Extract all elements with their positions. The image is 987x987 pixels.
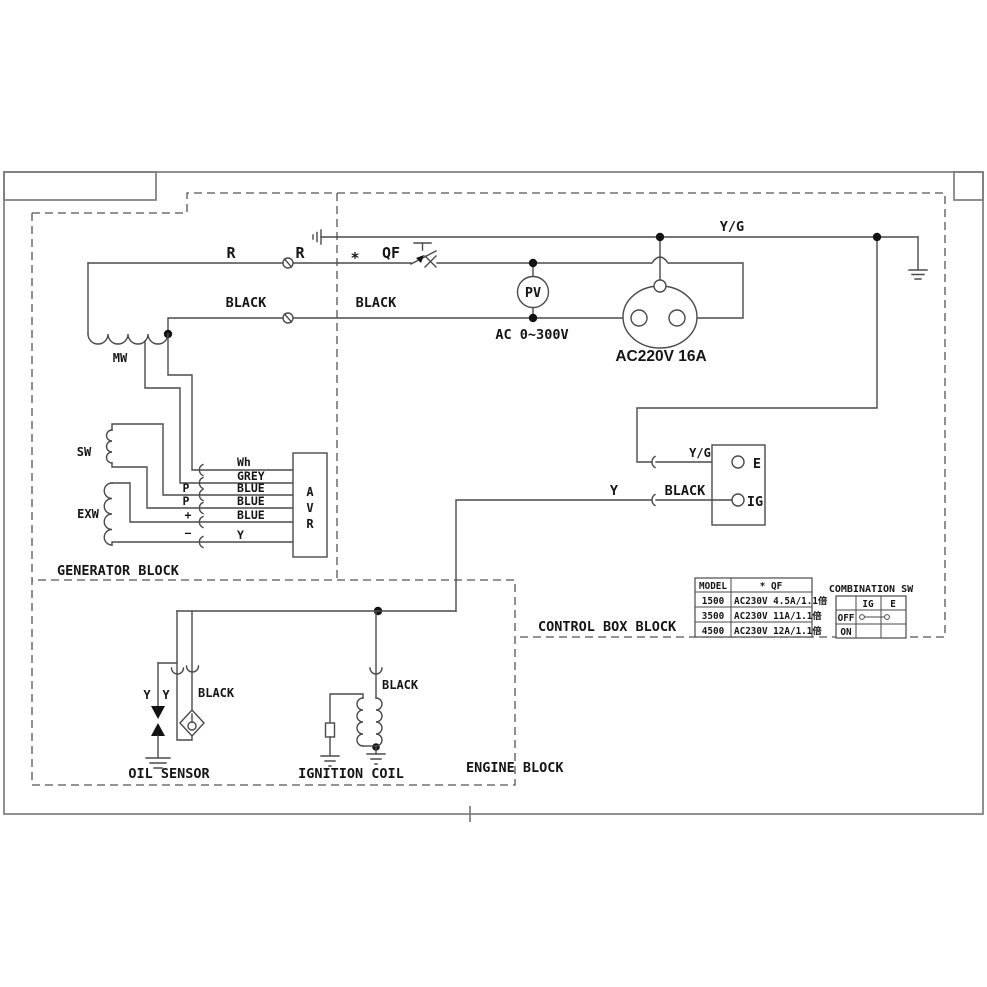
socket-notch-icon [654,280,666,292]
oil-sensor: Y Y BLACK OIL SENSOR [128,611,235,782]
model-cell: 4500 [702,626,725,637]
avr-letter: R [306,517,314,531]
ground-icon [367,747,385,764]
title-tab-right [954,172,983,200]
drawing-frame [4,172,983,822]
oil-wire-y2-label: Y [162,688,170,702]
socket-pin-left-icon [631,310,647,326]
connector-icon [652,495,655,506]
socket-pin-right-icon [669,310,685,326]
pv-meter: PV AC 0~300V [495,263,568,343]
ground-icon [146,736,170,768]
model-table: MODEL * QF 1500 AC230V 4.5A/1.1倍 3500 AC… [695,578,828,637]
e-wire-label: Y/G [689,446,711,460]
terminal-ig-icon [732,494,744,506]
ignition-wire-black-label: BLACK [382,678,419,692]
control-box-block-title: CONTROL BOX BLOCK [538,619,677,635]
black-right-label: BLACK [356,295,398,311]
ground-icon [313,230,321,244]
wire-color-label: BLUE [237,481,265,495]
valve-icon [151,706,165,719]
avr-box: A V R [293,453,327,557]
valve-icon [151,723,165,736]
combination-sw-title: COMBINATION SW [829,584,914,595]
oil-wire-y1-label: Y [143,688,151,702]
mw-winding: MW [88,334,168,365]
wire-color-label: Y [237,528,244,542]
model-cell: 1500 [702,596,725,607]
coil-icon [104,483,112,545]
connector-icon [199,465,203,548]
connector-icon [172,666,199,674]
asterisk-label: * [350,249,359,267]
oil-wire-black-label: BLACK [198,686,235,700]
pv-meter-range: AC 0~300V [495,327,568,343]
title-tab-left [4,172,156,200]
ignition-coil-label: IGNITION COIL [298,766,404,782]
model-table-header-1: MODEL [699,581,727,592]
combination-sw-col-ig: IG [862,599,874,610]
ig-wire-y-label: Y [610,483,619,499]
yg-top-label: Y/G [720,219,744,235]
socket-rating-label: AC220V 16A [615,348,706,365]
combination-sw-table: COMBINATION SW IG E OFF ON [829,584,914,638]
wire-color-label: BLUE [237,494,265,508]
spec-cell: AC230V 11A/1.1倍 [734,610,822,622]
r-right-label: R [295,244,305,262]
pv-meter-label: PV [525,285,541,301]
coil-icon [88,334,168,344]
black-left-label: BLACK [226,295,268,311]
model-table-header-2: * QF [760,581,783,592]
exw-label: EXW [77,507,99,521]
sw-label: SW [77,445,92,459]
avr-letter: V [306,501,313,515]
breaker-arrow-icon [416,255,424,263]
avr-wire-labels: Wh GREY BLUE BLUE BLUE Y P P + − [183,455,265,542]
model-cell: 3500 [702,611,725,622]
engine-block-title: ENGINE BLOCK [466,760,564,776]
generator-block-title: GENERATOR BLOCK [57,563,180,579]
mw-label: MW [113,351,128,365]
wiring-diagram-svg: PV AC 0~300V AC220V 16A MW [0,0,987,987]
terminal-ig-label: IG [747,494,763,510]
coil-icon [107,430,113,463]
spec-cell: AC230V 4.5A/1.1倍 [734,595,828,607]
wire-color-label: Wh [237,455,251,469]
combination-sw-row-on: ON [840,627,852,638]
terminal-label: P [183,481,190,495]
oil-sensor-label: OIL SENSOR [128,766,210,782]
wire-color-label: BLUE [237,508,265,522]
terminal-label: P [183,494,190,508]
terminal-e-icon [732,456,744,468]
exw-winding: EXW [77,483,112,545]
avr-letter: A [306,485,314,499]
coil-icon [376,698,382,746]
coil-icon [357,698,363,746]
wiring-diagram-page: PV AC 0~300V AC220V 16A MW [0,0,987,987]
ignition-coil: BLACK IGNITION COIL [298,611,419,782]
combination-sw-col-e: E [890,599,896,610]
connector-icon [652,457,655,468]
terminal-label: − [185,526,192,540]
avr-wires [112,334,293,548]
spark-plug-icon [326,723,335,737]
ig-wire: Y BLACK [456,483,732,611]
spec-cell: AC230V 12A/1.1倍 [734,625,822,637]
ground-icon [321,737,339,766]
ac-socket: AC220V 16A [615,237,706,365]
ground-icon [909,237,927,279]
terminal-e-label: E [753,456,761,472]
combination-sw-row-off: OFF [838,613,855,624]
ig-wire-black-label: BLACK [665,483,707,499]
junction-dots [164,233,881,751]
qf-label: QF [382,244,400,262]
sw-winding: SW [77,430,112,463]
terminal-label: + [185,508,192,522]
r-left-label: R [226,244,236,262]
